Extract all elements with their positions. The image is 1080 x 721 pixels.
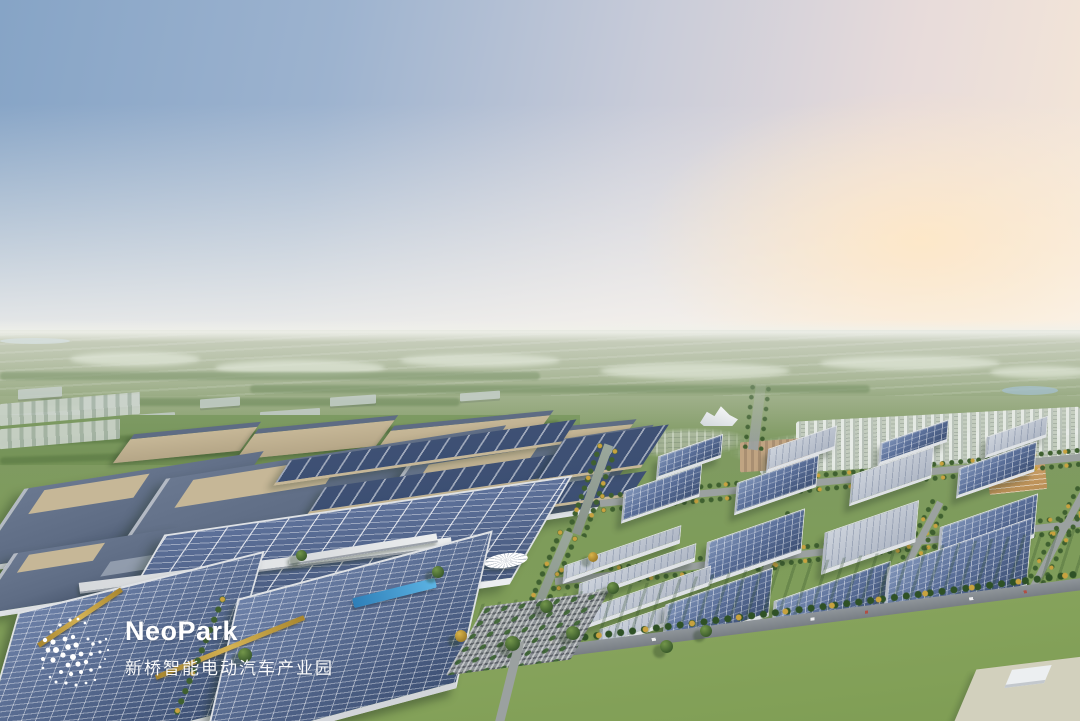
tree <box>588 552 598 562</box>
tree <box>505 636 520 651</box>
blossom-treeline <box>400 354 560 367</box>
logo-wordmark-group: NeoPark 新桥智能电动汽车产业园 <box>125 618 334 679</box>
tree <box>700 625 712 637</box>
blossom-treeline <box>820 356 1000 370</box>
neopark-logo-mark-icon <box>38 597 112 689</box>
tree <box>540 600 553 613</box>
horizon-haze <box>0 320 1080 342</box>
blossom-treeline <box>600 363 790 379</box>
logo-subtitle: 新桥智能电动汽车产业园 <box>125 654 334 679</box>
logo-wordmark: NeoPark <box>125 618 334 645</box>
tree <box>296 550 307 561</box>
tree <box>566 626 580 640</box>
distant-water <box>0 338 70 344</box>
hedgerow <box>0 372 540 380</box>
tree <box>660 640 673 653</box>
arterial-road <box>748 384 766 451</box>
tree <box>432 566 444 578</box>
hedgerow <box>250 385 870 393</box>
tree <box>455 630 467 642</box>
tree <box>607 582 619 594</box>
neopark-logo: NeoPark 新桥智能电动汽车产业园 <box>38 597 334 689</box>
blossom-treeline <box>70 352 200 366</box>
blossom-treeline <box>990 366 1080 378</box>
aerial-render-scene: NeoPark 新桥智能电动汽车产业园 <box>0 0 1080 721</box>
